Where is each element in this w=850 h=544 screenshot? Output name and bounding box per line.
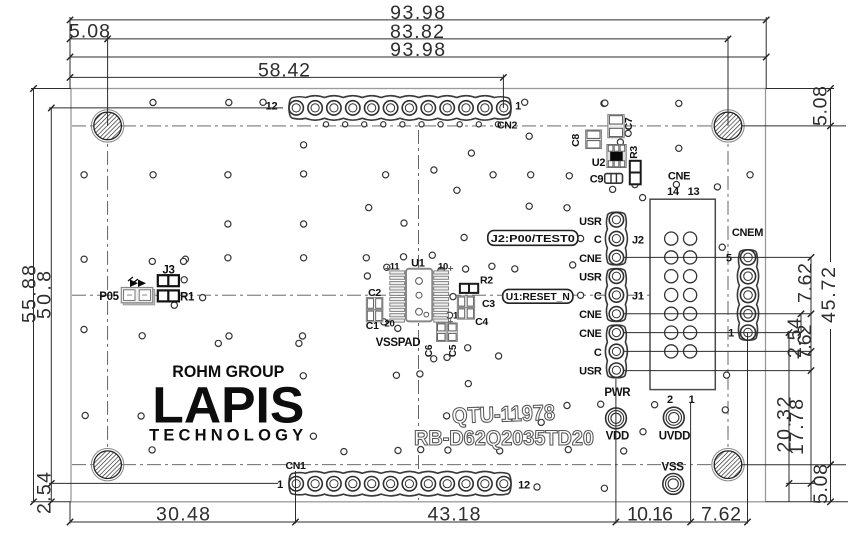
svg-text:C2: C2: [368, 287, 381, 299]
svg-text:C: C: [594, 347, 602, 359]
svg-text:1: 1: [277, 479, 283, 491]
svg-text:2.54: 2.54: [34, 472, 56, 514]
svg-text:J2:P00/TEST0: J2:P00/TEST0: [491, 233, 575, 245]
svg-text:93.98: 93.98: [390, 39, 445, 61]
svg-text:PWR: PWR: [604, 387, 631, 399]
svg-text:7.62: 7.62: [795, 263, 817, 303]
svg-text:C5: C5: [448, 344, 459, 357]
svg-text:2: 2: [667, 394, 673, 406]
svg-text:CNEM: CNEM: [732, 227, 763, 239]
svg-text:LAPIS: LAPIS: [152, 377, 304, 434]
svg-text:U1:RESET_N: U1:RESET_N: [506, 291, 570, 303]
svg-text:5: 5: [726, 252, 732, 264]
svg-text:C8: C8: [570, 134, 582, 147]
svg-text:C4: C4: [475, 316, 488, 328]
svg-text:VDD: VDD: [606, 431, 629, 443]
svg-text:17.78: 17.78: [786, 399, 808, 455]
svg-text:C1: C1: [366, 320, 379, 332]
svg-text:20: 20: [385, 319, 395, 330]
svg-text:R3: R3: [628, 146, 640, 159]
svg-text:50.8: 50.8: [34, 271, 56, 319]
svg-text:CN2: CN2: [497, 120, 518, 132]
svg-text:USR: USR: [579, 216, 602, 228]
svg-text:5.08: 5.08: [810, 86, 832, 126]
svg-text:CNE: CNE: [579, 328, 601, 340]
svg-text:CNE: CNE: [579, 309, 601, 321]
svg-text:5.08: 5.08: [810, 464, 832, 504]
svg-text:10: 10: [438, 262, 448, 273]
svg-text:QTU-11978: QTU-11978: [452, 400, 556, 429]
svg-text:VSS: VSS: [662, 462, 685, 474]
svg-text:VSSPAD: VSSPAD: [376, 337, 421, 349]
svg-text:U2: U2: [592, 157, 606, 169]
svg-text:43.18: 43.18: [428, 503, 481, 525]
svg-text:J2: J2: [632, 235, 644, 247]
svg-text:CNE: CNE: [579, 253, 601, 265]
svg-text:J1: J1: [632, 290, 644, 302]
svg-text:13: 13: [688, 186, 700, 198]
svg-text:1: 1: [689, 394, 695, 406]
svg-text:USR: USR: [579, 272, 602, 284]
svg-text:C9: C9: [590, 174, 604, 186]
svg-text:C6: C6: [424, 344, 435, 357]
svg-text:45.72: 45.72: [818, 267, 840, 323]
svg-text:2.54: 2.54: [784, 318, 806, 358]
svg-text:12: 12: [266, 101, 278, 113]
svg-text:C: C: [594, 234, 602, 246]
svg-text:11: 11: [390, 262, 400, 273]
svg-text:U1: U1: [411, 258, 425, 270]
svg-text:7.62: 7.62: [701, 503, 741, 525]
svg-text:C7: C7: [623, 117, 635, 130]
svg-text:CN1: CN1: [285, 460, 306, 472]
svg-text:TECHNOLOGY: TECHNOLOGY: [149, 426, 303, 444]
svg-text:10.16: 10.16: [627, 503, 673, 525]
svg-text:UVDD: UVDD: [659, 431, 690, 443]
svg-text:P05: P05: [99, 291, 119, 303]
svg-text:1: 1: [515, 101, 521, 113]
svg-text:R1: R1: [180, 291, 195, 303]
svg-text:12: 12: [518, 480, 530, 492]
svg-text:USR: USR: [579, 366, 602, 378]
svg-text:14: 14: [667, 186, 680, 198]
svg-text:C3: C3: [482, 298, 495, 310]
svg-text:5.08: 5.08: [69, 20, 110, 42]
svg-text:58.42: 58.42: [258, 59, 310, 81]
svg-text:RB-D62Q2035TD20: RB-D62Q2035TD20: [414, 427, 594, 450]
svg-text:1: 1: [728, 328, 734, 340]
svg-text:R2: R2: [480, 275, 493, 287]
svg-text:30.48: 30.48: [156, 503, 210, 525]
svg-text:CNE: CNE: [668, 171, 690, 183]
svg-text:C: C: [594, 290, 602, 302]
